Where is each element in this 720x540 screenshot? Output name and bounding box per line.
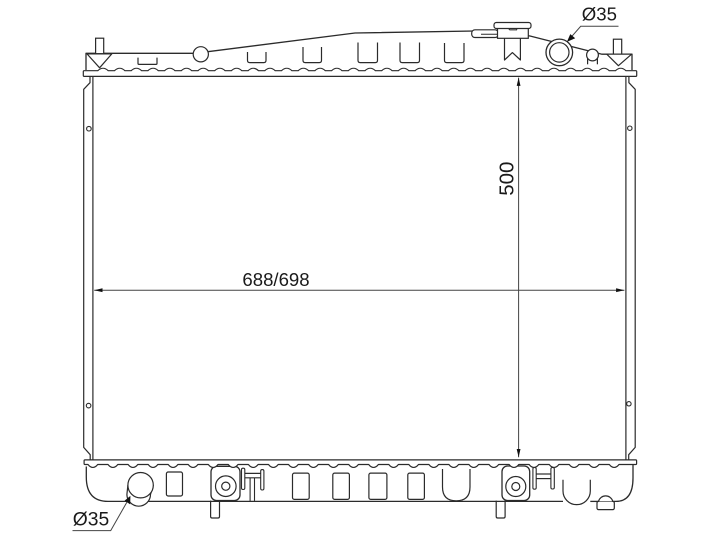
svg-text:688/698: 688/698 — [242, 269, 309, 290]
svg-text:Ø35: Ø35 — [73, 510, 109, 531]
svg-text:Ø35: Ø35 — [582, 4, 617, 25]
svg-text:500: 500 — [495, 162, 518, 196]
